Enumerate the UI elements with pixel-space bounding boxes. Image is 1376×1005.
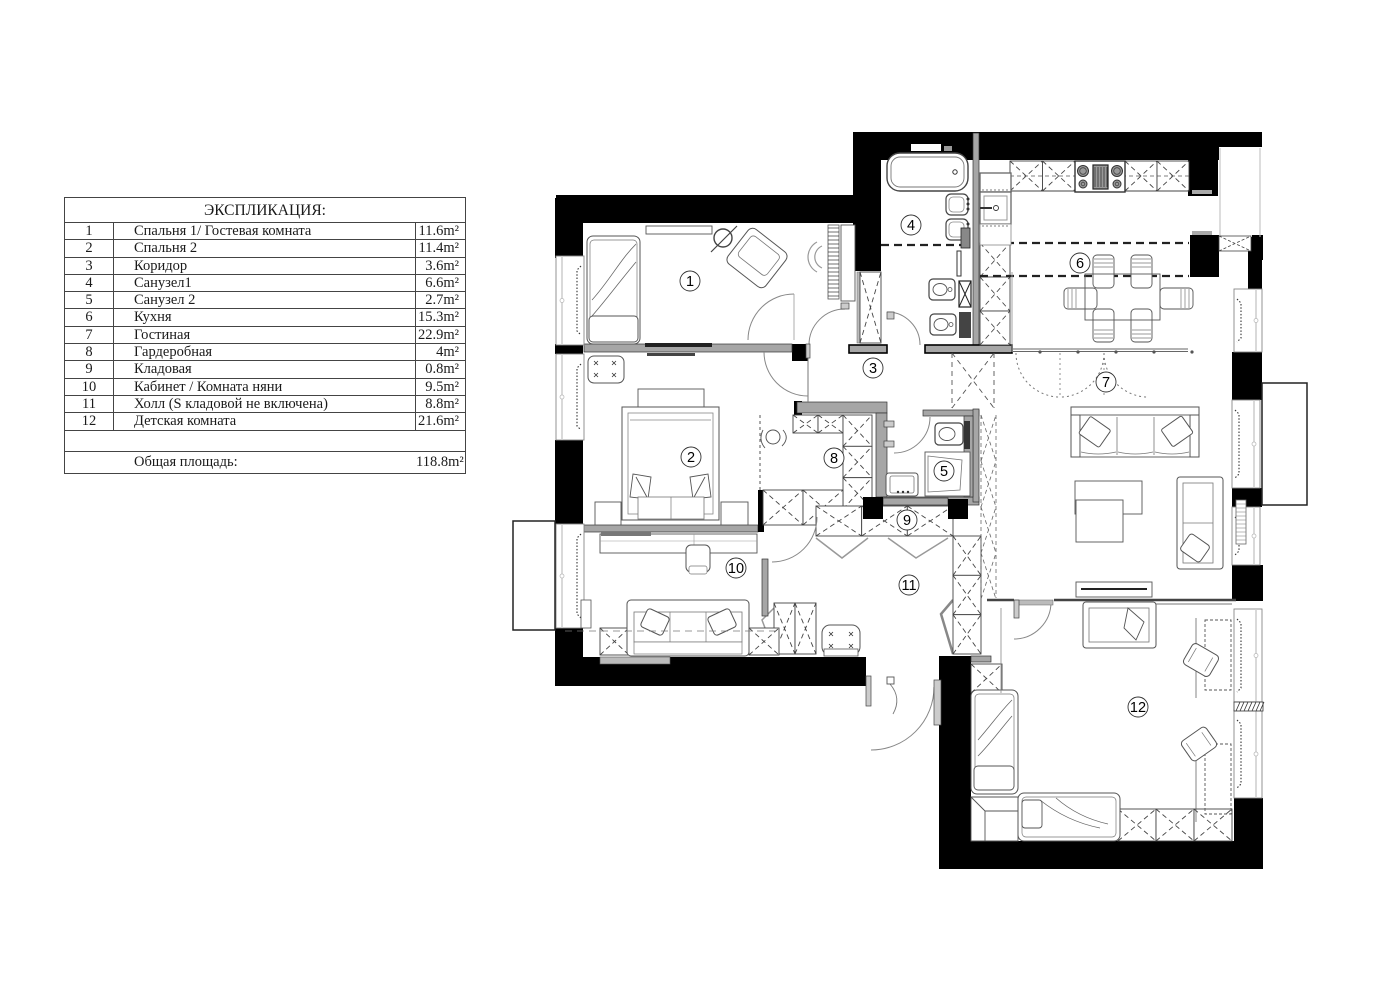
- svg-text:7: 7: [1102, 375, 1110, 391]
- svg-text:12: 12: [1130, 700, 1146, 716]
- svg-text:1: 1: [686, 274, 694, 290]
- svg-text:11: 11: [901, 578, 916, 594]
- svg-text:6: 6: [1076, 256, 1084, 272]
- svg-text:4: 4: [907, 218, 915, 234]
- svg-text:9: 9: [903, 513, 911, 529]
- svg-text:3: 3: [869, 361, 877, 377]
- svg-text:5: 5: [940, 464, 948, 480]
- svg-text:10: 10: [728, 561, 744, 577]
- svg-text:8: 8: [830, 451, 838, 467]
- svg-text:2: 2: [687, 450, 695, 466]
